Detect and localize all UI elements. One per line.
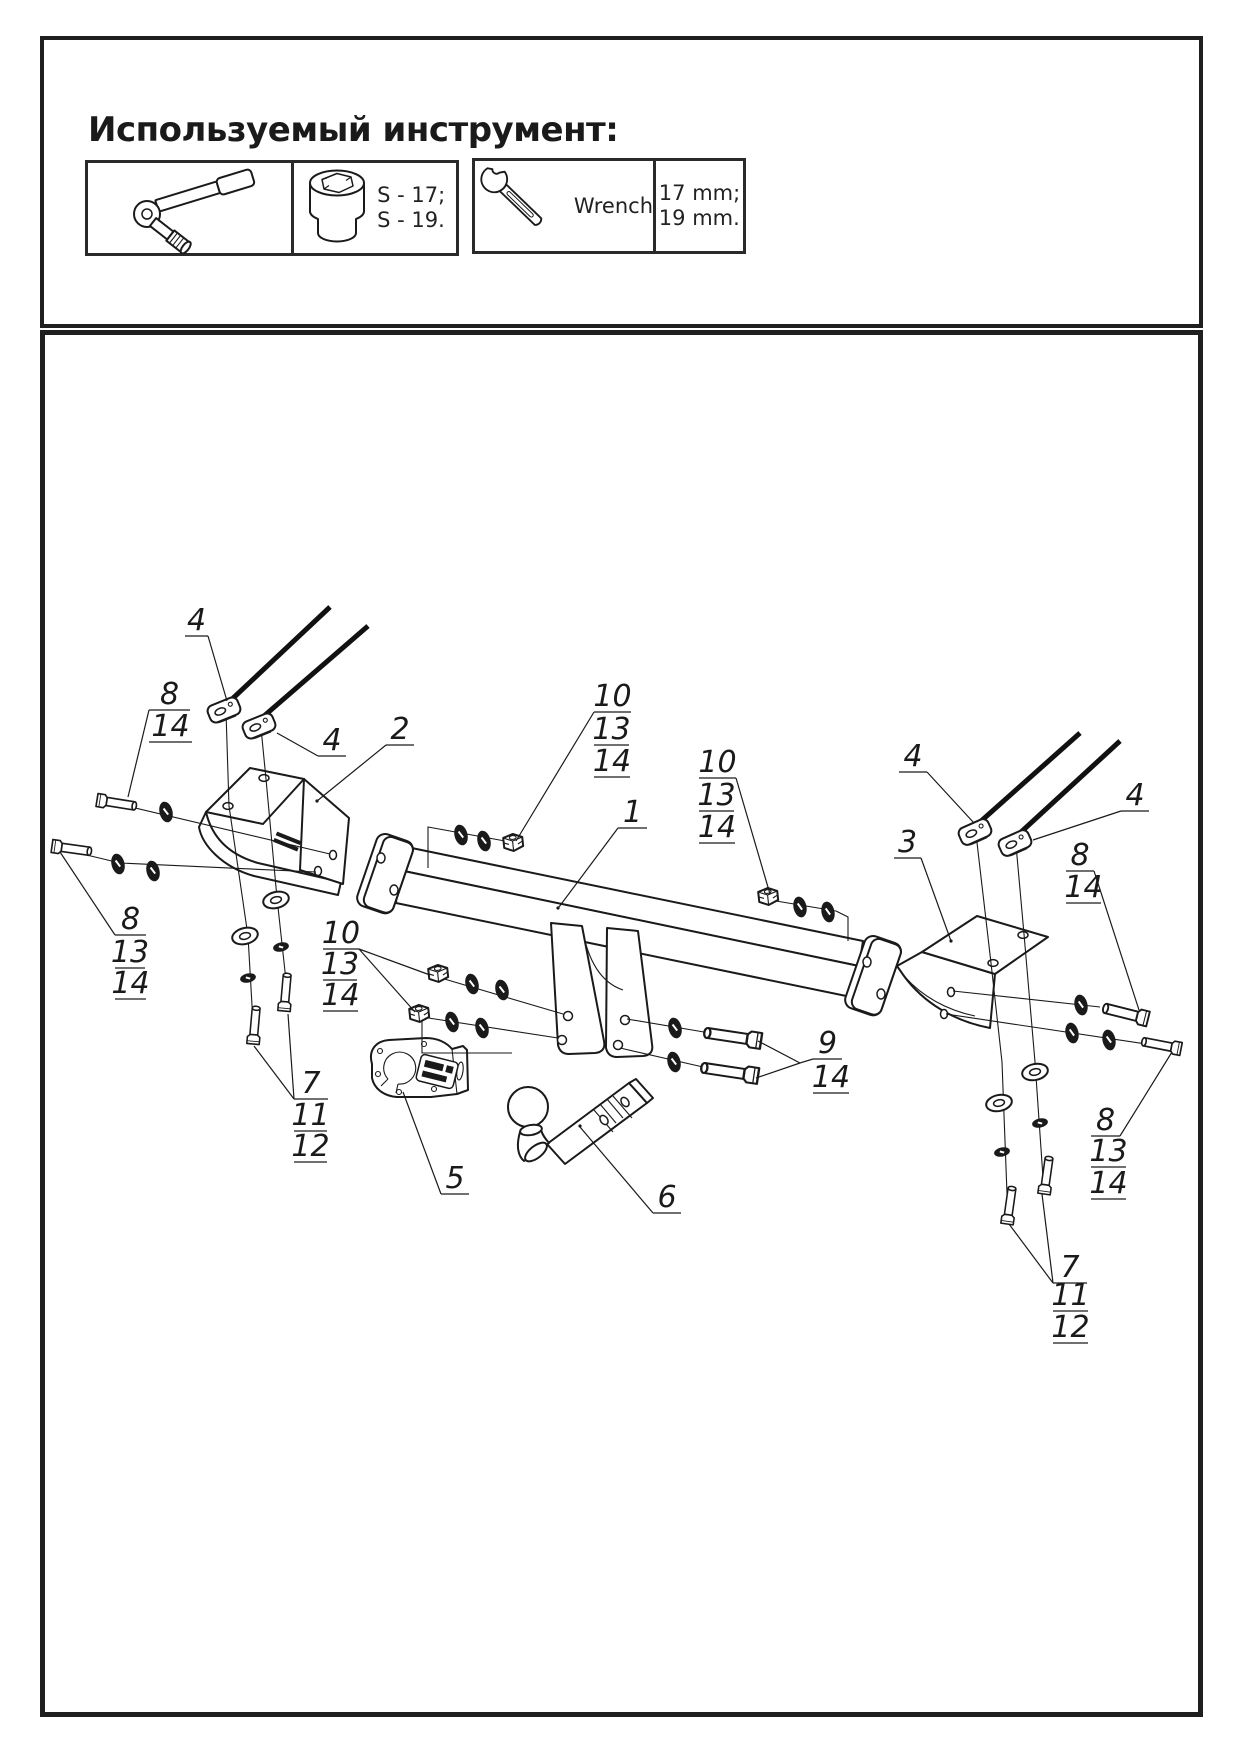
part-number-label: 14 [1064, 870, 1102, 905]
part-number-label: 9 [818, 1026, 837, 1061]
part-number-label: 8 [1070, 838, 1089, 873]
callout-7-11-12a: 71112 [254, 1014, 330, 1164]
part-number-label: 4 [187, 603, 206, 638]
part-number-label: 13 [697, 778, 735, 813]
callout-leader-line [516, 712, 594, 841]
page-title: Используемый инструмент: [88, 110, 618, 150]
part-number-label: 2 [390, 712, 409, 747]
callout-leader-line [277, 733, 318, 756]
callout-leader-line [359, 949, 430, 975]
towbar-exploded-diagram: 4814421013141101314443814813149141013147… [45, 335, 1198, 1712]
part-number-label: 14 [812, 1060, 850, 1095]
part-number-label: 13 [321, 947, 359, 982]
callout-leader-line [1033, 811, 1121, 840]
wrench-label: Wrench [574, 194, 653, 218]
callout-leader-line [359, 949, 415, 1012]
callout-9-14: 914 [756, 1026, 850, 1095]
part-number-label: 1 [623, 795, 642, 830]
socket-head-icon [305, 168, 369, 248]
socket-plate-part-5 [371, 1038, 468, 1097]
callout-leader-line [403, 1092, 441, 1194]
part-number-label: 4 [903, 739, 922, 774]
right-bracket-part-3 [897, 916, 1048, 1028]
ratchet-icon [95, 162, 285, 254]
part-number-label: 14 [111, 966, 149, 1001]
part-number-label: 8 [1096, 1103, 1115, 1138]
part-number-label: 10 [322, 916, 360, 951]
toolbox-ratchet-socket: S - 17; S - 19. [85, 160, 459, 256]
callout-leader-line [208, 636, 227, 701]
part-number-label: 14 [1089, 1166, 1127, 1201]
callout-leader-line [580, 1127, 653, 1213]
callout-leader-line [60, 852, 115, 935]
part-number-label: 10 [698, 745, 736, 780]
callout-leader-line [758, 1041, 813, 1063]
wrench-icon [475, 160, 560, 252]
part-number-label: 13 [1089, 1134, 1127, 1169]
callout-10-13-14b: 101314 [697, 745, 770, 894]
callout-leader-line [756, 1063, 800, 1078]
ratchet-cell [88, 163, 291, 253]
callout-leader-line [1120, 1052, 1172, 1136]
part-number-label: 14 [321, 978, 359, 1013]
callout-leader-line [288, 1014, 294, 1099]
part-number-label: 8 [121, 902, 140, 937]
part-number-label: 5 [445, 1161, 464, 1196]
callout-5: 5 [403, 1092, 469, 1196]
part-number-label: 14 [698, 810, 736, 845]
callout-leader-line [736, 778, 770, 894]
part-number-label: 3 [898, 825, 917, 860]
part-number-label: 12 [291, 1129, 329, 1164]
socket-sizes-text: S - 17; S - 19. [377, 183, 445, 233]
socket-size-cell: S - 17; S - 19. [291, 163, 456, 253]
part-number-label: 13 [111, 935, 149, 970]
callout-10-13-14a: 101314 [516, 679, 632, 841]
tools-section: Используемый инструмент: [40, 36, 1203, 328]
callout-10-13-14c: 101314 [321, 916, 430, 1013]
part-number-label: 6 [657, 1180, 676, 1215]
callout-4d: 4 [1033, 778, 1149, 840]
callout-8-13-14b: 81314 [1089, 1052, 1172, 1201]
wrench-cell: Wrench [475, 161, 653, 251]
part-number-label: 4 [322, 723, 341, 758]
callout-4c: 4 [899, 739, 974, 823]
part-number-label: 14 [593, 744, 631, 779]
callout-leader-line [128, 710, 149, 797]
callout-8-14b: 814 [1064, 838, 1139, 1010]
part-number-label: 11 [1051, 1278, 1089, 1313]
part-number-label: 11 [291, 1098, 329, 1133]
part-number-label: 4 [1125, 778, 1144, 813]
part-number-label: 8 [160, 677, 179, 712]
wrench-sizes-text: 17 mm; 19 mm. [659, 181, 740, 231]
toolbox-wrench: Wrench 17 mm; 19 mm. [472, 158, 746, 254]
callout-7-11-12b: 71112 [1009, 1194, 1090, 1345]
left-bracket-part-2 [199, 768, 349, 895]
callout-leader-line [927, 772, 974, 823]
part-number-label: 7 [301, 1066, 320, 1101]
callout-8-13-14a: 81314 [60, 852, 150, 1001]
part-number-label: 14 [151, 709, 189, 744]
callout-leader-line [921, 858, 951, 941]
ball-mount-part-6 [508, 1079, 653, 1165]
part-number-label: 12 [1051, 1310, 1089, 1345]
part-number-label: 13 [592, 712, 630, 747]
diagram-section: 4814421013141101314443814813149141013147… [40, 330, 1203, 1717]
callout-leader-line [254, 1046, 294, 1099]
callout-4b: 4 [277, 723, 346, 758]
callout-8-14a: 814 [128, 677, 192, 797]
instruction-page: Используемый инструмент: [0, 0, 1241, 1754]
callout-4a: 4 [185, 603, 227, 701]
callout-3: 3 [894, 825, 951, 941]
part-number-label: 10 [593, 679, 631, 714]
wrench-size-cell: 17 mm; 19 mm. [653, 161, 743, 251]
